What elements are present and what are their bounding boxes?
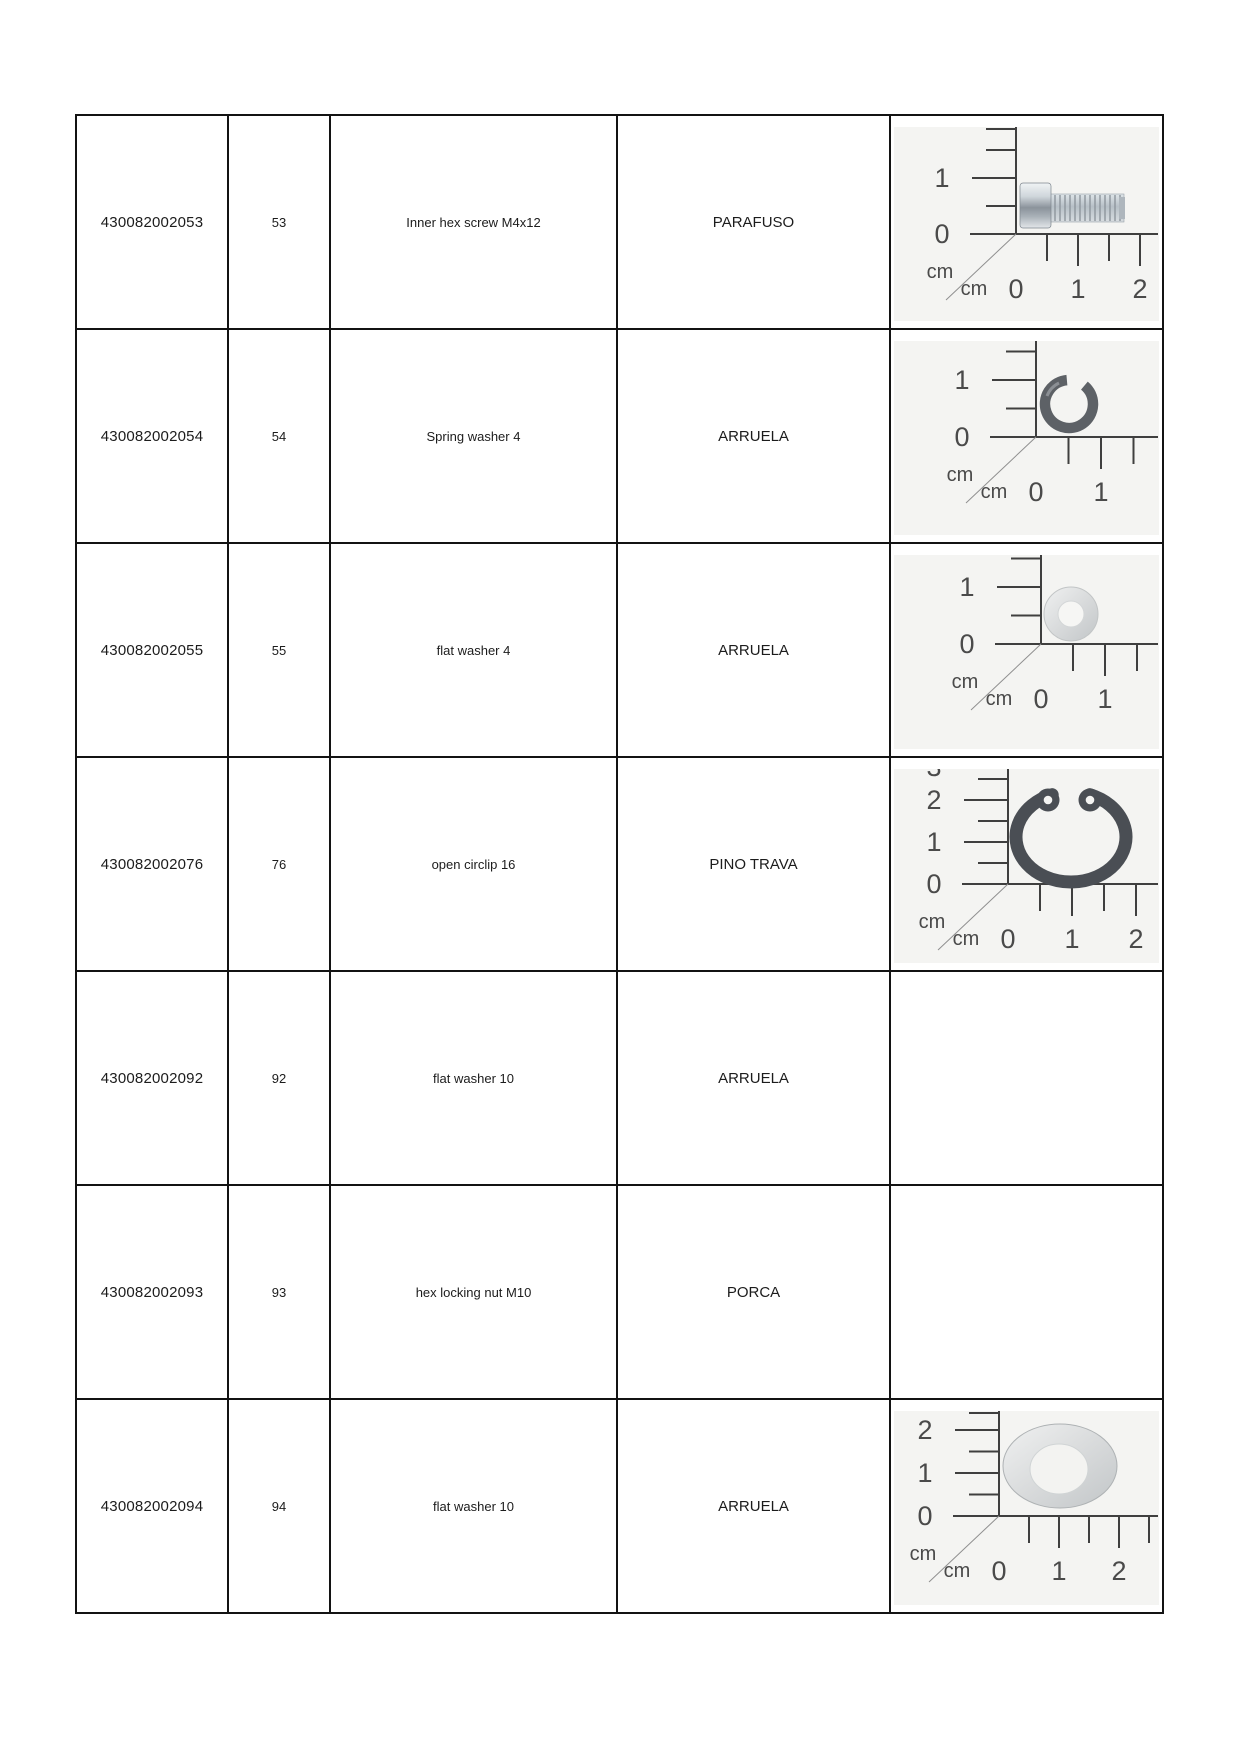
item-number-cell: 76 xyxy=(228,757,330,971)
parts-table: 430082002053 53 Inner hex screw M4x12 PA… xyxy=(75,114,1164,1614)
description-en-cell: Inner hex screw M4x12 xyxy=(330,115,617,329)
part-photo-circlip-16: 210012cmcm3 xyxy=(894,769,1159,963)
part-photo: 1001cmcm xyxy=(894,341,1159,535)
svg-text:0: 0 xyxy=(917,1501,932,1531)
svg-text:cm: cm xyxy=(961,278,988,300)
svg-text:0: 0 xyxy=(991,1556,1006,1586)
item-number: 92 xyxy=(272,1071,286,1086)
part-photo-cell: 1001cmcm xyxy=(890,329,1163,543)
description-en-cell: hex locking nut M10 xyxy=(330,1185,617,1399)
table-row: 430082002092 92 flat washer 10 ARRUELA xyxy=(76,971,1163,1185)
part-number-cell: 430082002053 xyxy=(76,115,228,329)
description-pt-cell: ARRUELA xyxy=(617,971,890,1185)
part-photo-cell xyxy=(890,971,1163,1185)
part-photo: 1001cmcm xyxy=(894,555,1159,749)
description-pt-cell: ARRUELA xyxy=(617,329,890,543)
description-en-cell: open circlip 16 xyxy=(330,757,617,971)
svg-text:cm: cm xyxy=(981,481,1008,503)
svg-text:1: 1 xyxy=(1070,274,1085,304)
svg-text:0: 0 xyxy=(954,422,969,452)
item-number: 55 xyxy=(272,643,286,658)
part-photo: 210012cmcm3 xyxy=(894,769,1159,963)
part-number-cell: 430082002076 xyxy=(76,757,228,971)
svg-text:1: 1 xyxy=(917,1458,932,1488)
svg-text:1: 1 xyxy=(926,827,941,857)
item-number-cell: 93 xyxy=(228,1185,330,1399)
svg-text:0: 0 xyxy=(959,629,974,659)
svg-text:3: 3 xyxy=(926,769,941,782)
part-number: 430082002053 xyxy=(101,214,204,231)
description-pt-cell: ARRUELA xyxy=(617,1399,890,1613)
description-en: hex locking nut M10 xyxy=(416,1285,532,1300)
item-number: 93 xyxy=(272,1285,286,1300)
svg-text:0: 0 xyxy=(1008,274,1023,304)
description-pt: ARRUELA xyxy=(718,642,789,659)
part-photo: 210012cmcm xyxy=(894,1411,1159,1605)
svg-text:1: 1 xyxy=(1064,924,1079,954)
part-photo-screw-m4x12: 10012cmcm xyxy=(894,127,1159,321)
part-photo-spring-washer-4: 1001cmcm xyxy=(894,341,1159,535)
table-row: 430082002053 53 Inner hex screw M4x12 PA… xyxy=(76,115,1163,329)
table-row: 430082002094 94 flat washer 10 ARRUELA 2… xyxy=(76,1399,1163,1613)
svg-text:2: 2 xyxy=(926,785,941,815)
svg-text:cm: cm xyxy=(947,464,974,486)
table-row: 430082002055 55 flat washer 4 ARRUELA 10… xyxy=(76,543,1163,757)
item-number: 53 xyxy=(272,215,286,230)
description-en: Spring washer 4 xyxy=(427,429,521,444)
part-number: 430082002094 xyxy=(101,1498,204,1515)
svg-text:0: 0 xyxy=(1000,924,1015,954)
description-en: flat washer 4 xyxy=(437,643,511,658)
part-number-cell: 430082002054 xyxy=(76,329,228,543)
svg-text:1: 1 xyxy=(1051,1556,1066,1586)
table-row: 430082002054 54 Spring washer 4 ARRUELA … xyxy=(76,329,1163,543)
svg-text:1: 1 xyxy=(1093,477,1108,507)
svg-text:2: 2 xyxy=(1128,924,1143,954)
svg-text:2: 2 xyxy=(1132,274,1147,304)
parts-catalog-page: 430082002053 53 Inner hex screw M4x12 PA… xyxy=(0,0,1241,1755)
part-photo: 10012cmcm xyxy=(894,127,1159,321)
description-pt-cell: PINO TRAVA xyxy=(617,757,890,971)
part-photo-cell: 210012cmcm xyxy=(890,1399,1163,1613)
item-number-cell: 92 xyxy=(228,971,330,1185)
description-pt-cell: ARRUELA xyxy=(617,543,890,757)
item-number-cell: 94 xyxy=(228,1399,330,1613)
item-number: 54 xyxy=(272,429,286,444)
part-number-cell: 430082002055 xyxy=(76,543,228,757)
description-pt: ARRUELA xyxy=(718,1070,789,1087)
svg-text:cm: cm xyxy=(919,911,946,933)
description-en: Inner hex screw M4x12 xyxy=(406,215,540,230)
part-photo-flat-washer-10: 210012cmcm xyxy=(894,1411,1159,1605)
svg-text:1: 1 xyxy=(954,365,969,395)
part-photo-cell: 1001cmcm xyxy=(890,543,1163,757)
description-pt-cell: PORCA xyxy=(617,1185,890,1399)
part-number: 430082002076 xyxy=(101,856,204,873)
svg-text:0: 0 xyxy=(1033,684,1048,714)
table-row: 430082002093 93 hex locking nut M10 PORC… xyxy=(76,1185,1163,1399)
svg-text:0: 0 xyxy=(926,869,941,899)
svg-text:2: 2 xyxy=(917,1415,932,1445)
svg-text:cm: cm xyxy=(927,261,954,283)
part-photo-cell xyxy=(890,1185,1163,1399)
item-number: 94 xyxy=(272,1499,286,1514)
description-pt: PORCA xyxy=(727,1284,780,1301)
item-number-cell: 53 xyxy=(228,115,330,329)
description-en-cell: Spring washer 4 xyxy=(330,329,617,543)
description-en: open circlip 16 xyxy=(432,857,516,872)
part-photo-cell: 10012cmcm xyxy=(890,115,1163,329)
item-number: 76 xyxy=(272,857,286,872)
description-pt-cell: PARAFUSO xyxy=(617,115,890,329)
description-en-cell: flat washer 4 xyxy=(330,543,617,757)
svg-text:cm: cm xyxy=(910,1543,937,1565)
svg-text:1: 1 xyxy=(959,572,974,602)
description-pt: ARRUELA xyxy=(718,428,789,445)
item-number-cell: 55 xyxy=(228,543,330,757)
svg-text:0: 0 xyxy=(934,219,949,249)
description-en: flat washer 10 xyxy=(433,1499,514,1514)
table-row: 430082002076 76 open circlip 16 PINO TRA… xyxy=(76,757,1163,971)
svg-text:cm: cm xyxy=(953,928,980,950)
description-pt: PARAFUSO xyxy=(713,214,794,231)
part-number-cell: 430082002094 xyxy=(76,1399,228,1613)
description-en: flat washer 10 xyxy=(433,1071,514,1086)
svg-text:cm: cm xyxy=(952,671,979,693)
svg-text:cm: cm xyxy=(944,1560,971,1582)
description-en-cell: flat washer 10 xyxy=(330,971,617,1185)
part-photo-cell: 210012cmcm3 xyxy=(890,757,1163,971)
description-pt: PINO TRAVA xyxy=(709,856,797,873)
part-number: 430082002092 xyxy=(101,1070,204,1087)
part-number: 430082002054 xyxy=(101,428,204,445)
item-number-cell: 54 xyxy=(228,329,330,543)
svg-text:2: 2 xyxy=(1111,1556,1126,1586)
part-number-cell: 430082002092 xyxy=(76,971,228,1185)
svg-text:cm: cm xyxy=(986,688,1013,710)
part-photo-flat-washer-4: 1001cmcm xyxy=(894,555,1159,749)
svg-text:1: 1 xyxy=(1097,684,1112,714)
svg-text:0: 0 xyxy=(1028,477,1043,507)
svg-text:1: 1 xyxy=(934,163,949,193)
description-pt: ARRUELA xyxy=(718,1498,789,1515)
part-number: 430082002093 xyxy=(101,1284,204,1301)
part-number: 430082002055 xyxy=(101,642,204,659)
part-number-cell: 430082002093 xyxy=(76,1185,228,1399)
description-en-cell: flat washer 10 xyxy=(330,1399,617,1613)
